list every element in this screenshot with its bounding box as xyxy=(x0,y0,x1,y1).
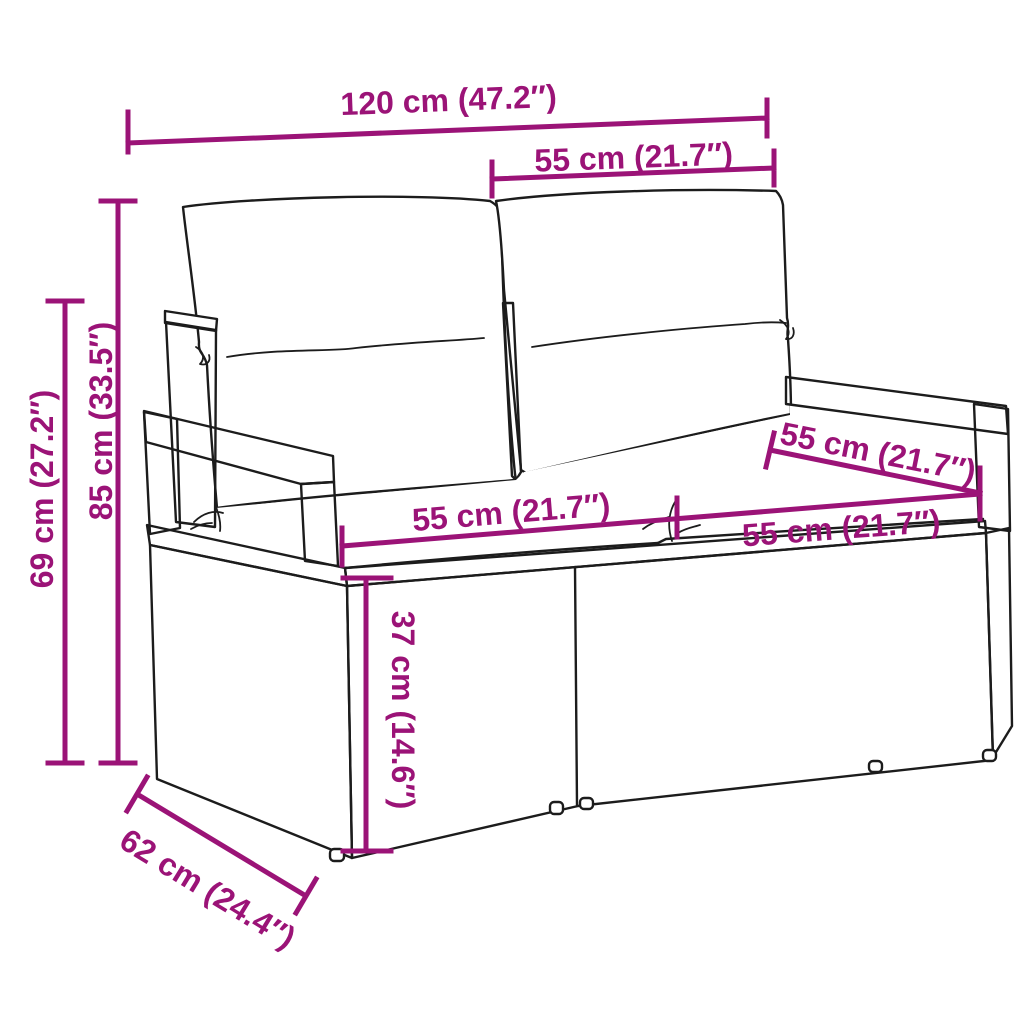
base-front-face xyxy=(347,533,993,858)
dim-seat-height: 37 cm (14.6″) xyxy=(343,578,421,851)
dim-overall-depth-label: 62 cm (24.4″) xyxy=(114,821,302,955)
dim-total-height-label: 85 cm (33.5″) xyxy=(83,322,119,521)
feet xyxy=(330,750,996,861)
base xyxy=(147,521,1012,861)
dim-armrest-height: 69 cm (27.2″) xyxy=(24,301,82,763)
dim-overall-width-label: 120 cm (47.2″) xyxy=(340,78,558,122)
dim-seat-height-label: 37 cm (14.6″) xyxy=(385,611,421,810)
product-dimension-diagram: 120 cm (47.2″) 55 cm (21.7″) 85 cm (33.5… xyxy=(0,0,1024,1024)
base-module-seam xyxy=(575,567,577,805)
base-side-face xyxy=(150,545,352,858)
dim-armrest-height-label: 69 cm (27.2″) xyxy=(24,390,60,589)
foot xyxy=(869,761,882,772)
foot xyxy=(580,798,593,809)
foot xyxy=(550,802,563,814)
dim-total-height: 85 cm (33.5″) xyxy=(83,201,135,763)
dim-backrest-cushion-width: 55 cm (21.7″) xyxy=(492,135,774,196)
back-cushion-left-shape xyxy=(183,197,516,508)
dim-backrest-cushion-width-label: 55 cm (21.7″) xyxy=(534,135,734,178)
dim-overall-depth: 62 cm (24.4″) xyxy=(114,777,316,956)
back-cushion-left xyxy=(183,197,516,508)
diagram-canvas: 120 cm (47.2″) 55 cm (21.7″) 85 cm (33.5… xyxy=(0,0,1024,1024)
foot xyxy=(983,750,996,761)
base-right-face xyxy=(986,528,1012,757)
